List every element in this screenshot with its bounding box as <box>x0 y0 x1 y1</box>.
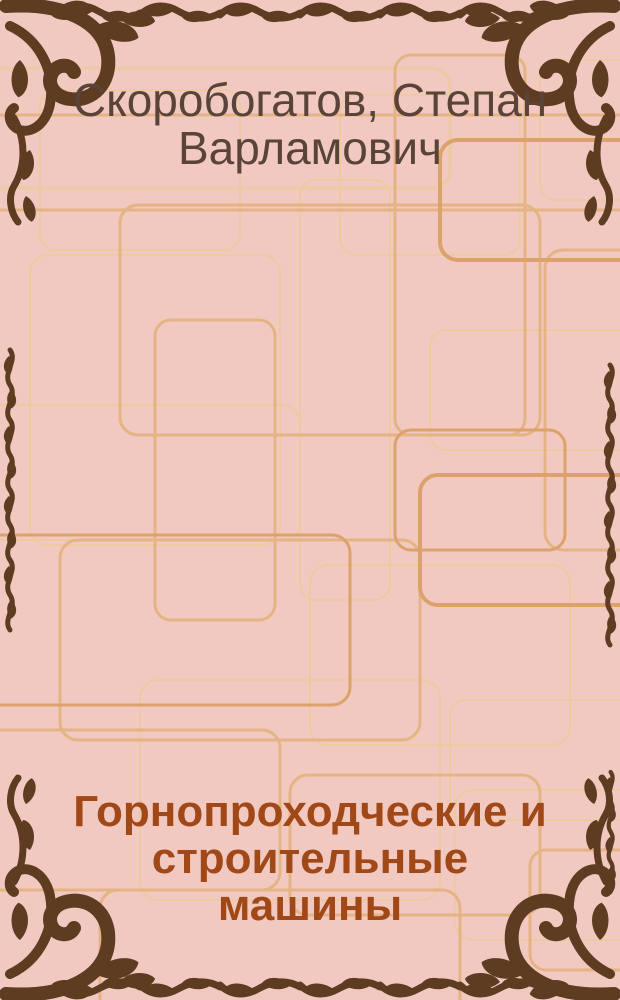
author-name-line1: Скоробогатов, Степан <box>0 76 620 124</box>
book-title-line2: строительные <box>0 835 620 882</box>
book-title-line1: Горнопроходческие и <box>0 788 620 835</box>
author-name-line2: Варламович <box>0 124 620 172</box>
book-cover: Скоробогатов, Степан Варламович Горнопро… <box>0 0 620 1000</box>
author-name: Скоробогатов, Степан Варламович <box>0 76 620 172</box>
book-title: Горнопроходческие и строительные машины <box>0 788 620 929</box>
side-vine-left <box>4 350 16 630</box>
book-title-line3: машины <box>0 882 620 929</box>
